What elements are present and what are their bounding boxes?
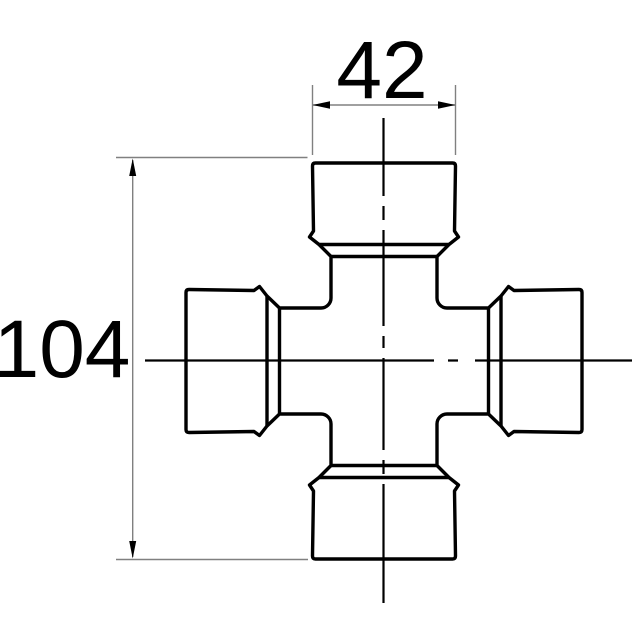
arrowhead-104-top [129,159,136,177]
arrowhead-104-bottom [129,541,136,559]
dimension-104-label: 104 [0,304,130,395]
arrowhead-42-right [438,101,456,108]
dimension-42-label: 42 [336,25,427,116]
universal-joint-cross-drawing: 42 104 [0,0,640,640]
arrowhead-42-left [313,101,331,108]
dimension-104: 104 [0,158,308,560]
centerlines [145,118,632,603]
technical-drawing-canvas: 42 104 [0,0,640,640]
